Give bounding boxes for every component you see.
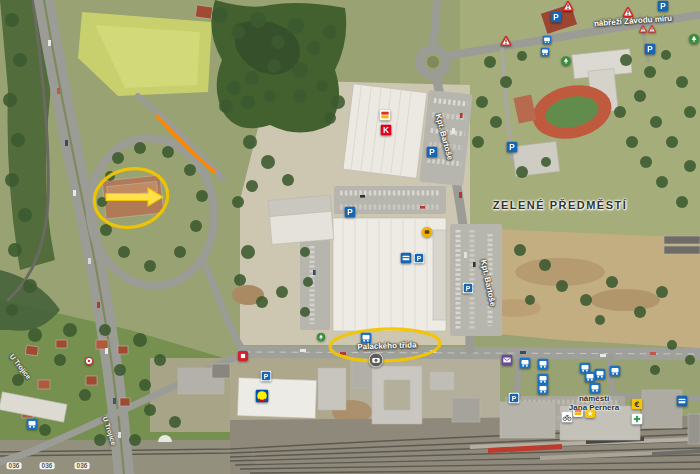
street-label-u-trojice-east: U Trojice bbox=[101, 416, 118, 447]
street-label-kpt-bartose-south: Kpt. Bartoše bbox=[479, 259, 498, 307]
label-layer: nábřeží Závodu míruZELENÉ PŘEDMĚSTÍKpt. … bbox=[0, 0, 700, 474]
place-label-namesti-jana-pernera: náměstí Jana Pernera bbox=[569, 394, 619, 412]
map-canvas[interactable]: PPPPKPPPPPP★€ nábřeží Závodu míruZELENÉ … bbox=[0, 0, 700, 474]
street-label-nabrezi-zavodu-miru: nábřeží Závodu míru bbox=[594, 14, 673, 29]
street-label-palackeho-trida: Palackého třída bbox=[357, 340, 416, 351]
street-label-u-trojice-west: U Trojice bbox=[8, 353, 33, 381]
route-marker: 036 bbox=[40, 462, 55, 469]
district-label-zelene-predmesti: ZELENÉ PŘEDMĚSTÍ bbox=[493, 199, 628, 212]
route-marker: 036 bbox=[75, 462, 90, 469]
route-marker: 036 bbox=[7, 462, 22, 469]
street-label-kpt-bartose-north: Kpt. Bartoše bbox=[433, 113, 454, 161]
